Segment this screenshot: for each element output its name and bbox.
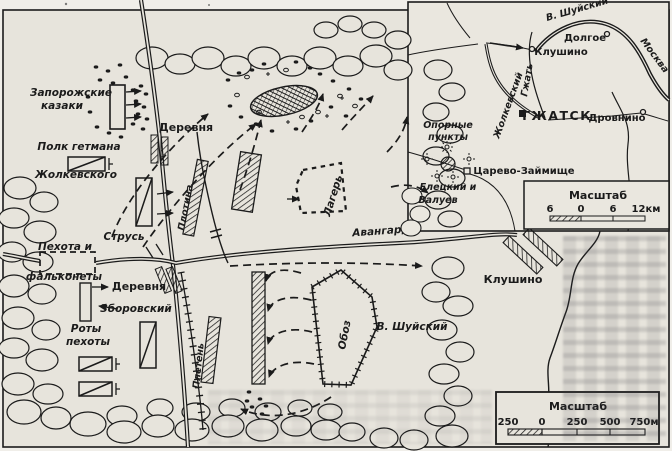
inset-scale-tick-3: 12км [632, 204, 661, 215]
main-scale-box: Масштаб 250 0 250 500 750м [496, 392, 659, 444]
inset-scale-tick-0: 6 [547, 204, 554, 215]
main-scale-tick-2: 250 [567, 417, 588, 428]
label-zaporozhian-cossacks-1: Запорожские [30, 87, 112, 99]
inset-label-strongpoints-1: Опорные [423, 120, 473, 131]
inset-scale-title: Масштаб [569, 189, 627, 202]
unit-infantry-company [80, 283, 91, 321]
inset-label-strongpoints-2: пункты [428, 132, 468, 143]
unit-cossacks [110, 85, 125, 129]
label-village-south: Деревня [112, 280, 166, 293]
inset-label-commanders-2: Валуев [418, 195, 457, 206]
label-strus: Струсь [103, 231, 144, 243]
main-scale-tick-4: 750м [629, 417, 658, 428]
tsarevo-settlement-square [464, 168, 470, 174]
label-hetman-regiment-2: Жолкевского [34, 169, 117, 181]
label-zborovsky: Зборовский [100, 303, 172, 315]
inset-label-commanders-1: Елецкий и [420, 182, 477, 193]
inset-scale-tick-2: 6 [610, 204, 617, 215]
inset-label-dolgoe: Долгое [564, 33, 606, 44]
inset-scale-tick-1: 0 [578, 204, 585, 215]
label-village-north: Деревня [159, 121, 213, 134]
inset-label-gzhatsk: ГЖАТСК [522, 108, 592, 123]
unit-cavalry-south [140, 322, 156, 368]
label-shuisky: В. Шуйский [377, 321, 449, 333]
label-zaporozhian-cossacks-2: казаки [41, 100, 84, 112]
strongpoint-main [441, 157, 455, 171]
map-canvas: Запорожские казаки Полк гетмана Жолкевск… [0, 0, 672, 451]
main-scale-tick-3: 500 [600, 417, 621, 428]
inset-label-tsarevo: Царево-Займище [473, 166, 574, 177]
label-infantry-2: фальконеты [26, 271, 103, 283]
unit-russian-line [252, 272, 265, 384]
label-infantry-1: Пехота и [38, 241, 93, 253]
label-hetman-regiment-1: Полк гетмана [37, 141, 120, 153]
inset-label-klushino: Клушино [534, 47, 588, 58]
label-companies-2: пехоты [66, 336, 110, 348]
main-scale-tick-1: 0 [539, 417, 546, 428]
inset-label-drovnino: Дровнино [589, 113, 646, 124]
unit-hussars-column [136, 178, 152, 226]
scan-dust [65, 3, 210, 6]
label-companies-1: Роты [71, 323, 102, 335]
inset-scale-box: Масштаб 6 0 6 12км [524, 181, 669, 229]
battle-map-scan: Запорожские казаки Полк гетмана Жолкевск… [0, 0, 672, 451]
main-scale-tick-0: 250 [498, 417, 519, 428]
label-klushino: Клушино [484, 273, 543, 286]
main-scale-title: Масштаб [549, 400, 607, 413]
